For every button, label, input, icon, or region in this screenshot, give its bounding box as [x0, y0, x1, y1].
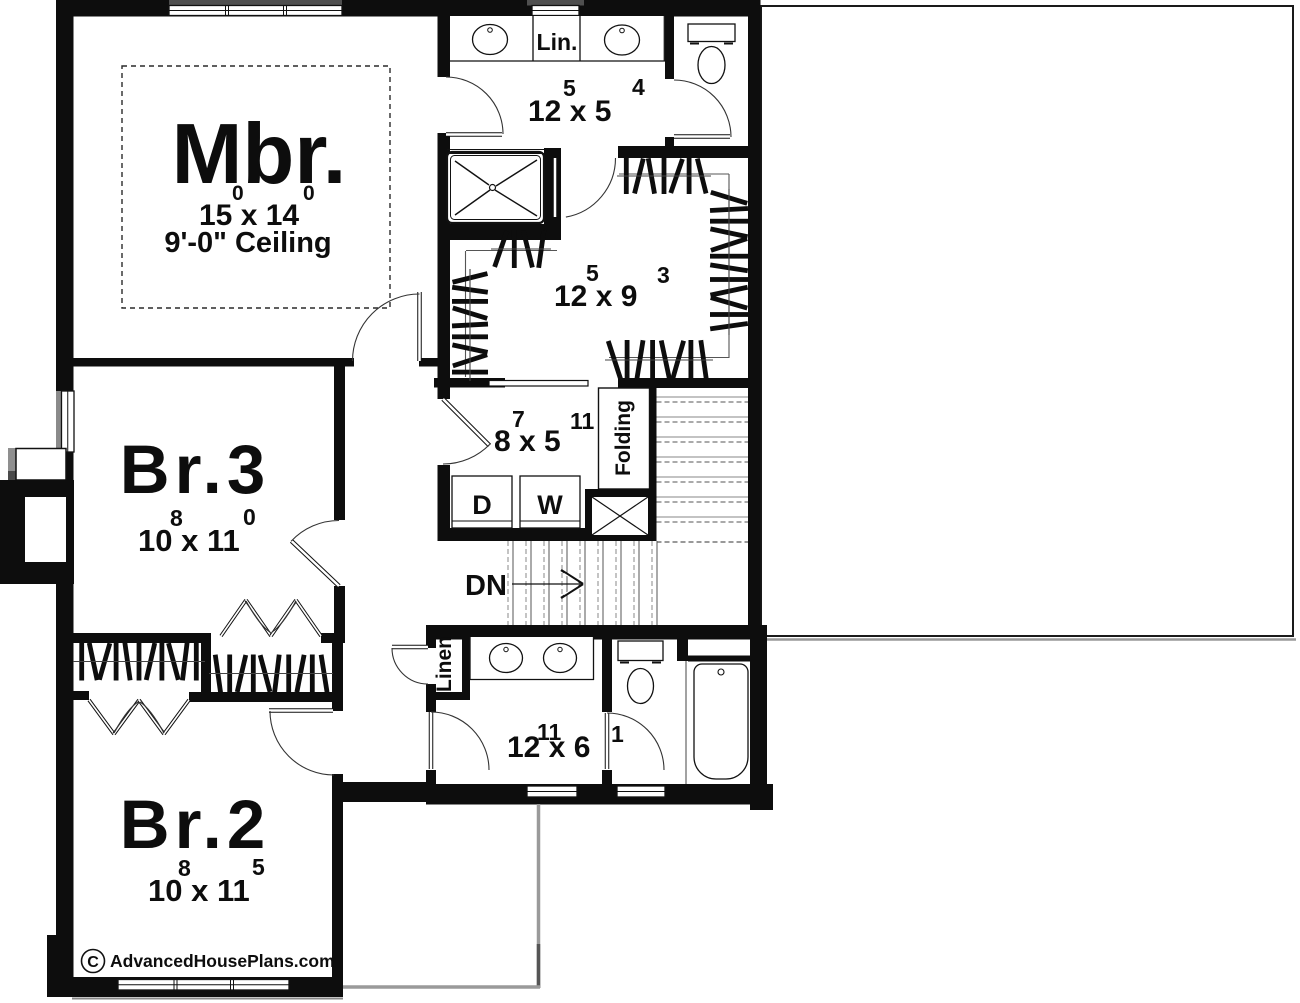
svg-text:AdvancedHousePlans.com: AdvancedHousePlans.com [110, 951, 335, 971]
svg-text:5: 5 [586, 260, 599, 286]
svg-text:W: W [537, 490, 563, 520]
svg-text:8: 8 [170, 505, 183, 531]
svg-text:0: 0 [303, 182, 315, 205]
svg-text:8: 8 [178, 855, 191, 881]
svg-text:0: 0 [243, 504, 256, 530]
svg-text:10 x 11: 10 x 11 [148, 873, 250, 908]
svg-text:9'-0" Ceiling: 9'-0" Ceiling [164, 227, 331, 259]
svg-text:7: 7 [512, 406, 525, 432]
svg-text:DN: DN [465, 570, 507, 602]
svg-text:11: 11 [570, 408, 595, 434]
svg-text:Mbr.: Mbr. [172, 107, 347, 202]
svg-text:Br.3: Br.3 [120, 431, 270, 508]
svg-text:D: D [472, 490, 492, 520]
svg-text:1: 1 [611, 721, 624, 747]
svg-text:4: 4 [632, 74, 645, 100]
svg-text:0: 0 [232, 182, 244, 205]
svg-text:Linen: Linen [433, 636, 456, 692]
svg-text:5: 5 [252, 854, 265, 880]
svg-text:Folding: Folding [612, 400, 635, 476]
svg-text:11: 11 [537, 719, 562, 745]
svg-text:C: C [87, 954, 99, 971]
svg-text:10 x 11: 10 x 11 [138, 523, 240, 558]
svg-text:5: 5 [563, 75, 576, 101]
svg-text:8 x 5: 8 x 5 [494, 425, 561, 458]
svg-text:Br.2: Br.2 [120, 786, 270, 863]
svg-text:3: 3 [657, 262, 670, 288]
svg-text:Lin.: Lin. [537, 29, 578, 55]
